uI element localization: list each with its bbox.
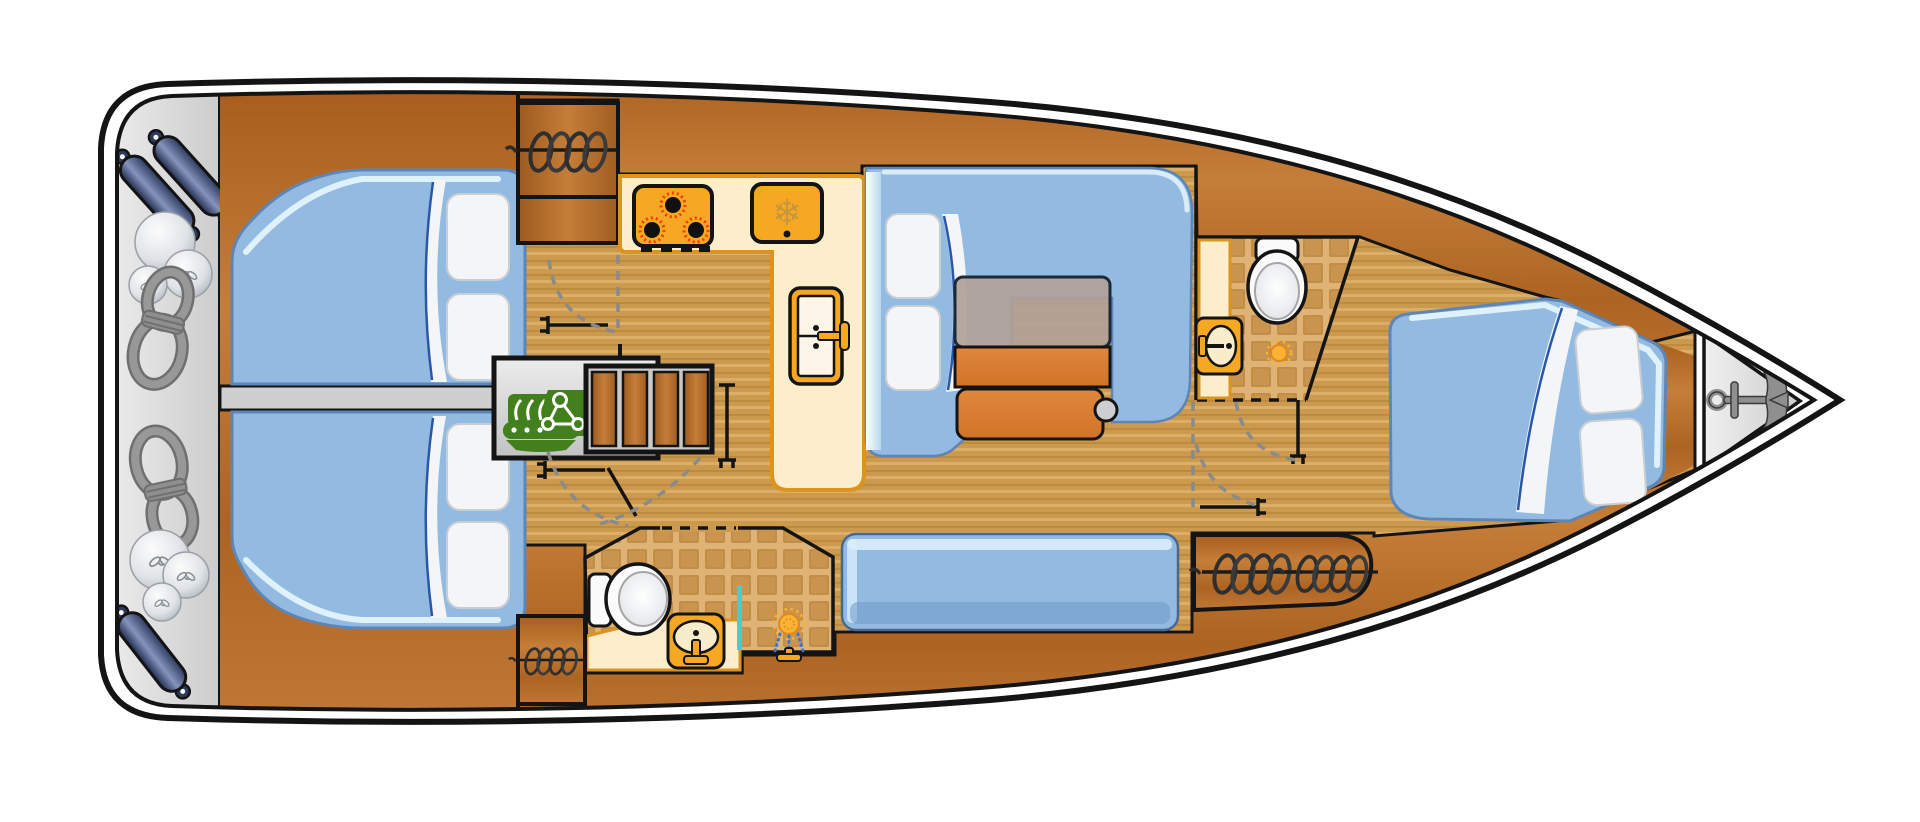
stowage-locker-small (509, 616, 585, 704)
companionway-cabinets (506, 103, 618, 243)
table-leaf (955, 347, 1110, 387)
pillow (447, 522, 509, 608)
fridge-icon: ❄ (752, 184, 822, 242)
toilet-icon (589, 564, 670, 634)
bathroom-sink-icon (1196, 318, 1242, 374)
forward-cabin (1390, 299, 1666, 521)
aft-berth-starboard (232, 412, 525, 628)
galley-sink-icon (790, 288, 849, 384)
aft-bathroom (585, 524, 833, 672)
cabinet (518, 197, 618, 243)
sofa-highlight (848, 539, 1172, 550)
shower-screen (737, 585, 742, 650)
pillow (1579, 418, 1647, 506)
salon-table (955, 277, 1117, 439)
pillow (886, 214, 940, 298)
stove-icon (634, 186, 712, 252)
aft-berth-port (232, 170, 525, 384)
interior: ❄ (90, 60, 1848, 745)
table-leaf-folded (955, 277, 1110, 347)
pillow (1574, 325, 1643, 414)
snowflake-icon: ❄ (772, 193, 802, 234)
cabin-divider (220, 386, 518, 410)
companionway-ladder-icon (586, 366, 712, 452)
floor-plan-svg: ❄ (0, 0, 1920, 822)
aft-cabins (220, 90, 525, 712)
pillow (886, 306, 940, 390)
pillow (447, 194, 509, 280)
table-knob (1095, 399, 1117, 421)
yacht-floor-plan: ❄ (0, 0, 1920, 822)
sofa-shadow (850, 602, 1170, 624)
stowage-locker (1190, 535, 1378, 610)
salon-bench-sofa (842, 534, 1178, 630)
table-bench (957, 389, 1103, 439)
settee-backrest (866, 172, 881, 450)
bathroom-sink-icon (668, 614, 724, 668)
toilet-icon (1248, 238, 1306, 323)
